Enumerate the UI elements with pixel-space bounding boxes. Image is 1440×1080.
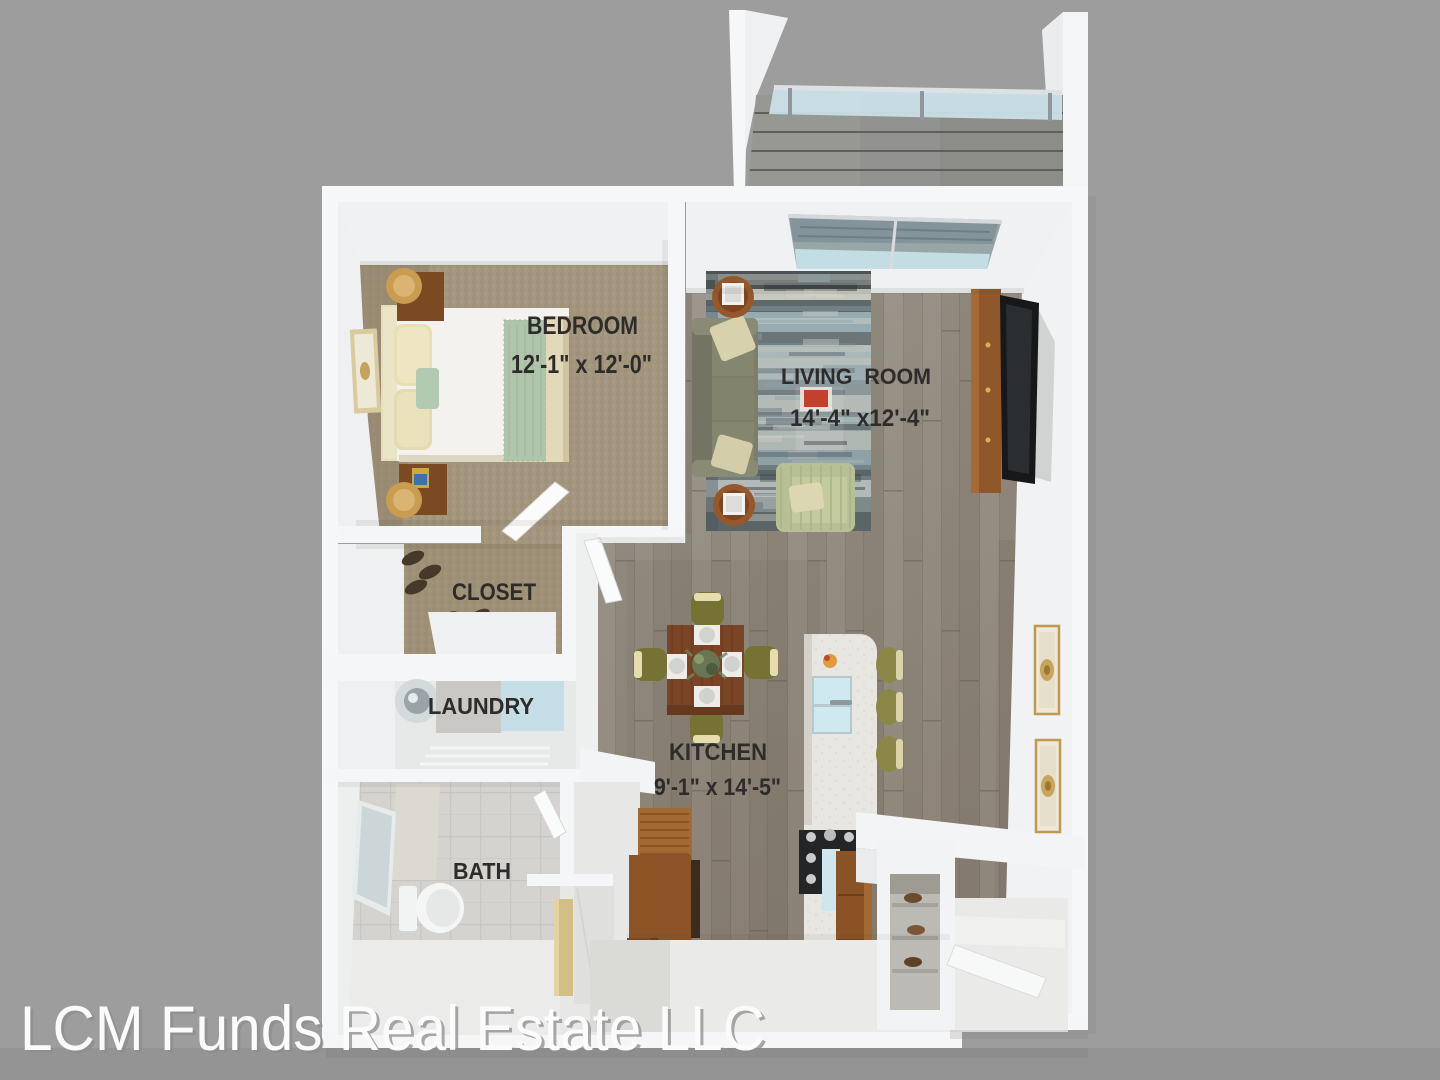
svg-text:14'-4" x12'-4": 14'-4" x12'-4": [790, 405, 930, 432]
svg-text:BATH: BATH: [453, 858, 511, 884]
svg-text:LCM Funds Real Estate LLC: LCM Funds Real Estate LLC: [20, 994, 765, 1064]
svg-text:LAUNDRY: LAUNDRY: [428, 693, 534, 719]
svg-text:12'-1" x 12'-0": 12'-1" x 12'-0": [511, 349, 652, 379]
svg-text:KITCHEN: KITCHEN: [669, 739, 767, 766]
svg-text:9'-1" x 14'-5": 9'-1" x 14'-5": [654, 774, 781, 801]
svg-text:LIVING ROOM: LIVING ROOM: [781, 364, 931, 389]
svg-text:BEDROOM: BEDROOM: [527, 312, 638, 340]
svg-text:CLOSET: CLOSET: [452, 579, 536, 606]
